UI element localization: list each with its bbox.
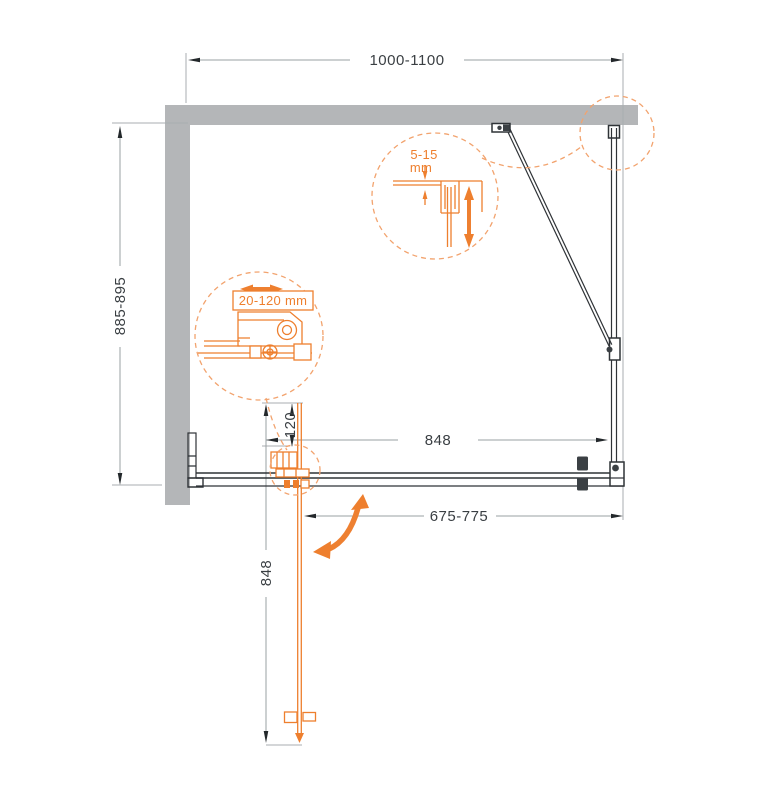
- arrowhead-right: [611, 514, 623, 519]
- callout-leader-top: [482, 147, 581, 168]
- installation-diagram: 1000-1100 885-895 848 675-775: [0, 0, 760, 800]
- arrowhead-bottom: [118, 473, 123, 485]
- arrowhead-left: [304, 514, 316, 519]
- door-diagonal-position: [492, 124, 612, 347]
- right-side-panel: [609, 126, 620, 463]
- left-wall-profile: [188, 433, 203, 487]
- hinge-block: [607, 338, 621, 360]
- bracket-dot: [497, 126, 501, 130]
- dimension-label-top-width: 1000-1100: [369, 52, 444, 69]
- pivot-base: [276, 469, 309, 477]
- profile-channel-inner: [445, 185, 455, 209]
- dimension-door-width: 848: [266, 432, 608, 449]
- detail-wall-profile: 20-120 mm: [195, 272, 323, 400]
- arrowhead-right: [596, 438, 608, 443]
- arrowhead-top: [118, 126, 123, 138]
- open-door-end-tip: [295, 733, 304, 743]
- pivot-mechanism: [271, 452, 309, 488]
- pivot-foot: [284, 480, 290, 488]
- detail-adjustment-label: 20-120 mm: [239, 293, 307, 308]
- arrowhead-top: [264, 404, 269, 416]
- swing-arc: [329, 508, 358, 549]
- handle-knob-outer: [577, 457, 588, 471]
- rail-lines-left: [204, 341, 240, 346]
- glass-in-channel: [448, 187, 452, 247]
- door-glass-edge: [510, 129, 612, 345]
- corner-connector: [610, 462, 624, 486]
- dimension-label-left-depth: 885-895: [112, 277, 129, 336]
- arrowhead-right: [611, 58, 623, 63]
- clamp-block: [250, 346, 261, 358]
- installation-diagram-page: 1000-1100 885-895 848 675-775: [0, 0, 760, 800]
- pivot-foot: [293, 480, 299, 488]
- arrowhead-bottom: [264, 731, 269, 743]
- adjust-arrowhead-up: [464, 186, 474, 200]
- handle-knob: [303, 713, 316, 722]
- top-wall: [165, 105, 638, 125]
- hinge-pivot-dot: [607, 347, 613, 353]
- door-swing-arrow: [313, 494, 369, 559]
- pivot-foot: [301, 480, 309, 488]
- arrowhead-left: [188, 58, 200, 63]
- bottom-rail: [196, 473, 624, 486]
- bracket-body: [238, 312, 302, 346]
- bracket-catch: [503, 125, 510, 132]
- dimension-label-open-door-length: 848: [258, 560, 275, 587]
- left-wall: [165, 105, 190, 505]
- knob-outer: [278, 321, 297, 340]
- handle-knob-inner: [577, 478, 588, 491]
- detail-top-gap: 5-15 mm: [372, 133, 498, 259]
- handle-knob: [285, 712, 298, 723]
- door-handle-open: [285, 712, 316, 723]
- door-open-position: [271, 403, 369, 743]
- top-wall-profile-bracket: [609, 126, 620, 139]
- gap-arrow-up: [423, 190, 428, 199]
- dimension-label-door-width: 848: [425, 432, 452, 449]
- detail-gap-unit: mm: [410, 160, 432, 175]
- end-block: [294, 344, 311, 360]
- corner-fastener-dot: [612, 465, 619, 472]
- swing-arrowhead-up: [351, 494, 369, 510]
- dimension-label-pivot-offset: 120: [282, 412, 299, 439]
- gap-arrow-down: [423, 171, 428, 180]
- knob-inner: [283, 326, 292, 335]
- dimension-label-entry-width: 675-775: [430, 508, 489, 525]
- swing-arrowhead-left: [313, 541, 331, 559]
- arrowhead-left: [266, 438, 278, 443]
